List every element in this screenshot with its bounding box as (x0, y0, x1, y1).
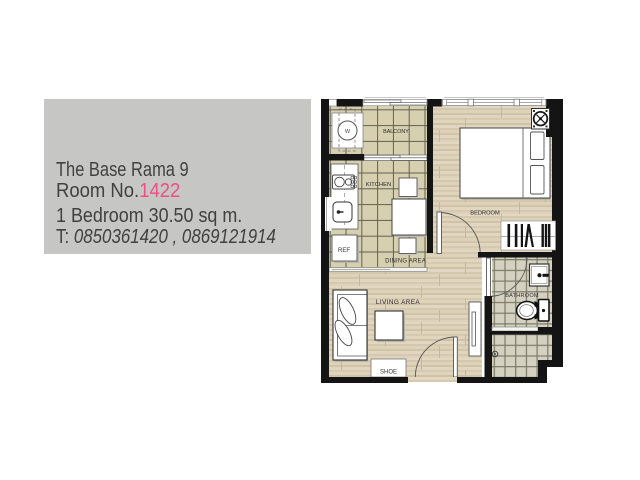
svg-text:BATHROOM: BATHROOM (505, 293, 539, 299)
svg-text:KITCHEN: KITCHEN (366, 182, 391, 188)
svg-text:BEDROOM: BEDROOM (470, 210, 500, 216)
svg-text:W: W (345, 129, 351, 135)
svg-text:BALCONY: BALCONY (383, 129, 409, 135)
svg-text:LIVING AREA: LIVING AREA (376, 299, 421, 306)
svg-text:SHOE: SHOE (380, 370, 397, 376)
svg-text:DINING AREA: DINING AREA (385, 258, 426, 264)
svg-text:REF: REF (338, 248, 350, 254)
